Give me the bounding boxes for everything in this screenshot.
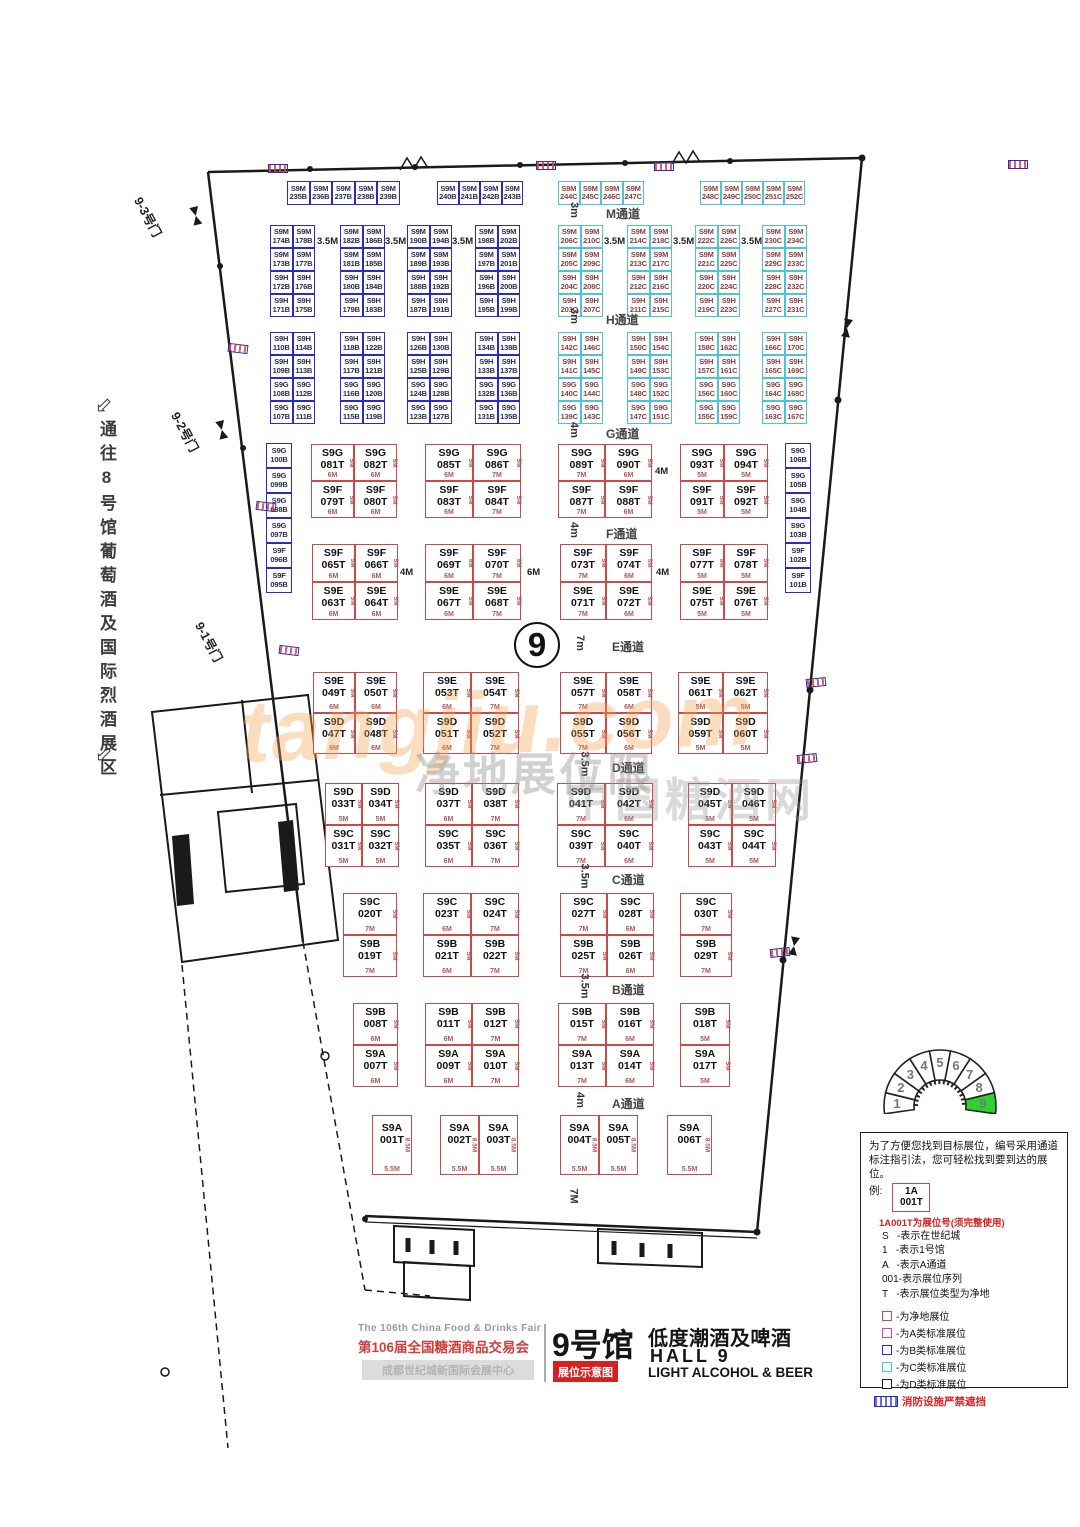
booth-S9D-052T: S9D052T7M5M [471,713,519,754]
booth-S9M-252C: S9M252C [784,181,805,205]
booth-S9A-007T: S9A007T6M5M [353,1045,398,1087]
aisle-width-label: 7m [574,635,586,651]
booth-S9C-027T: S9C027T7M5M [560,893,607,935]
booth-S9F-078T: S9F078T5M5M [724,544,768,582]
booth-S9E-067T: S9E067T6M5M [425,582,473,620]
legend-swatch-label: -为D类标准展位 [896,1376,967,1391]
aisle-name-label: D通道 [612,759,645,776]
booth-S9H-154C: S9H154C [650,332,673,355]
booth-S9M-250C: S9M250C [742,181,763,205]
booth-S9H-195B: S9H195B [475,294,498,317]
booth-S9M-214C: S9M214C [627,225,650,248]
booth-S9H-117B: S9H117B [340,355,363,378]
booth-S9M-197B: S9M197B [475,248,498,271]
hall-position-indicator: 123456789 [876,1034,1004,1114]
booth-S9G-128B: S9G128B [430,378,453,401]
booth-S9G-111B: S9G111B [293,401,316,424]
booth-S9H-223C: S9H223C [718,294,741,317]
booth-S9E-063T: S9E063T6M5M [312,582,355,620]
booth-S9H-175B: S9H175B [293,294,316,317]
booth-S9H-113B: S9H113B [293,355,316,378]
booth-S9H-231C: S9H231C [785,294,808,317]
fire-hydrant-icon [654,162,674,171]
hall-name-en: HALL 9 [650,1346,731,1367]
booth-S9G-093T: S9G093T5M5M [680,444,724,481]
hall-segment-number: 6 [952,1058,959,1073]
booth-S9M-230C: S9M230C [762,225,785,248]
legend-swatch-color [882,1328,892,1338]
booth-S9F-069T: S9F069T6M5M [425,544,473,582]
aisle-name-label: E通道 [612,638,644,655]
booth-S9G-081T: S9G081T6M5M [311,444,354,481]
booth-S9G-124B: S9G124B [407,378,430,401]
booth-S9B-018T: S9B018T5M5M [680,1003,730,1045]
booth-S9G-127B: S9G127B [430,401,453,424]
booth-S9H-170C: S9H170C [785,332,808,355]
booth-S9M-194B: S9M194B [430,225,453,248]
booth-S9H-180B: S9H180B [340,271,363,294]
gap-dimension-label: 4M [655,466,668,477]
booth-S9M-186B: S9M186B [363,225,386,248]
booth-S9H-172B: S9H172B [270,271,293,294]
hall-name-cn: 9号馆 [552,1320,634,1366]
booth-S9M-240B: S9M240B [437,181,459,205]
booth-S9G-082T: S9G082T6M5M [354,444,397,481]
booth-S9H-183B: S9H183B [363,294,386,317]
booth-S9M-226C: S9M226C [718,225,741,248]
booth-S9H-110B: S9H110B [270,332,293,355]
entrance-vestibules [394,1226,702,1300]
legend-swatch-row: -为B类标准展位 [882,1342,1059,1357]
entrance-doors [408,1238,670,1258]
booth-S9E-054T: S9E054T7M5M [471,672,519,713]
booth-S9M-241B: S9M241B [459,181,481,205]
booth-S9M-190B: S9M190B [407,225,430,248]
booth-S9A-017T: S9A017T5M5M [680,1045,730,1087]
booth-S9M-185B: S9M185B [363,248,386,271]
booth-S9G-103B: S9G103B [785,518,811,543]
booth-S9G-119B: S9G119B [363,401,386,424]
fire-equipment-icon [874,1396,898,1407]
booth-S9H-169C: S9H169C [785,355,808,378]
booth-S9H-150C: S9H150C [627,332,650,355]
booth-S9F-095B: S9F095B [266,568,292,593]
booth-S9F-077T: S9F077T5M5M [680,544,724,582]
booth-S9F-065T: S9F065T6M5M [312,544,355,582]
booth-S9H-129B: S9H129B [430,355,453,378]
aisle-width-label: 3.5m [579,751,591,776]
gap-dimension-label: 3.5M [741,236,762,247]
booth-S9H-137B: S9H137B [498,355,521,378]
booth-S9G-167C: S9G167C [785,401,808,424]
legend-swatch-row: -为C类标准展位 [882,1359,1059,1374]
booth-S9M-246C: S9M246C [601,181,623,205]
booth-S9H-146C: S9H146C [581,332,604,355]
booth-S9H-232C: S9H232C [785,271,808,294]
booth-S9E-050T: S9E050T6M5M [355,672,397,713]
booth-S9G-147C: S9G147C [627,401,650,424]
booth-S9B-029T: S9B029T7M5M [680,935,732,977]
booth-S9E-057T: S9E057T7M5M [560,672,606,713]
booth-S9H-179B: S9H179B [340,294,363,317]
booth-S9H-215C: S9H215C [650,294,673,317]
booth-S9G-108B: S9G108B [270,378,293,401]
booth-S9M-247C: S9M247C [623,181,645,205]
legend-example-line1: 1A [893,1186,929,1198]
gap-dimension-label: 3.5M [385,236,406,247]
corridor-note: 通往8号馆葡萄酒及国际烈酒展区 [94,420,119,782]
booth-S9A-005T: S9A005T5.5M8.5M [599,1115,638,1175]
booth-S9C-030T: S9C030T7M5M [680,893,732,935]
booth-S9H-220C: S9H220C [695,271,718,294]
legend-swatch-label: -为B类标准展位 [896,1342,966,1357]
fair-title-cn: 第106届全国糖酒商品交易会 [358,1336,529,1356]
booth-S9M-237B: S9M237B [332,181,355,205]
booth-S9M-202B: S9M202B [498,225,521,248]
booth-S9B-025T: S9B025T7M5M [560,935,607,977]
booth-S9H-145C: S9H145C [581,355,604,378]
hall-segment-number: 7 [966,1067,973,1082]
booth-S9G-164C: S9G164C [762,378,785,401]
booth-S9G-156C: S9G156C [695,378,718,401]
booth-S9M-234C: S9M234C [785,225,808,248]
booth-S9G-099B: S9G099B [266,468,292,493]
booth-S9D-041T: S9D041T7M5M [557,783,605,825]
booth-S9G-104B: S9G104B [785,493,811,518]
booth-S9H-216C: S9H216C [650,271,673,294]
booth-S9H-134B: S9H134B [475,332,498,355]
booth-S9E-049T: S9E049T6M5M [313,672,355,713]
aisle-name-label: F通道 [606,525,637,542]
aisle-name-label: H通道 [606,311,639,328]
title-divider [544,1324,546,1382]
booth-S9C-028T: S9C028T6M5M [607,893,654,935]
booth-S9H-149C: S9H149C [627,355,650,378]
booth-S9E-061T: S9E061T5M5M [678,672,723,713]
booth-S9C-020T: S9C020T7M5M [343,893,397,935]
booth-S9M-222C: S9M222C [695,225,718,248]
booth-S9C-039T: S9C039T7M5M [557,825,605,867]
booth-S9D-038T: S9D038T7M5M [472,783,519,825]
booth-S9E-071T: S9E071T7M5M [560,582,606,620]
booth-S9D-048T: S9D048T6M5M [355,713,397,754]
booth-S9M-225C: S9M225C [718,248,741,271]
legend-code-note: 1A001T为展位号(须完整使用) [879,1215,1059,1229]
booth-S9D-059T: S9D059T5M5M [678,713,723,754]
booth-S9F-087T: S9F087T7M5M [558,481,605,518]
fire-hydrant-icon [536,161,556,170]
fire-hydrant-icon [268,164,288,173]
legend-example-booth: 1A 001T [892,1183,930,1212]
booth-S9M-205C: S9M205C [558,248,581,271]
booth-S9G-163C: S9G163C [762,401,785,424]
booth-S9H-125B: S9H125B [407,355,430,378]
booth-S9E-072T: S9E072T6M5M [606,582,652,620]
booth-S9D-045T: S9D045T5M5M [688,783,732,825]
aisle-width-label: 4m [568,422,580,438]
booth-S9F-066T: S9F066T6M5M [355,544,398,582]
booth-S9A-002T: S9A002T5.5M8.5M [440,1115,479,1175]
booth-S9F-092T: S9F092T5M5M [724,481,768,518]
booth-S9M-201B: S9M201B [498,248,521,271]
booth-S9M-174B: S9M174B [270,225,293,248]
booth-S9H-141C: S9H141C [558,355,581,378]
booth-S9D-033T: S9D033T5M5M [325,783,362,825]
booth-S9G-085T: S9G085T6M5M [425,444,473,481]
booth-S9G-107B: S9G107B [270,401,293,424]
stairwell-bars [172,820,299,906]
booth-S9E-075T: S9E075T5M5M [680,582,724,620]
booth-S9G-094T: S9G094T5M5M [724,444,768,481]
booth-S9H-176B: S9H176B [293,271,316,294]
booth-S9H-121B: S9H121B [363,355,386,378]
legend-swatch-color [882,1345,892,1355]
booth-S9E-064T: S9E064T6M5M [355,582,398,620]
legend-swatch-color [882,1362,892,1372]
booth-S9G-116B: S9G116B [340,378,363,401]
booth-S9F-083T: S9F083T6M5M [425,481,473,518]
booth-S9M-243B: S9M243B [502,181,524,205]
booth-S9M-182B: S9M182B [340,225,363,248]
booth-S9B-021T: S9B021T6M5M [423,935,471,977]
booth-S9G-143C: S9G143C [581,401,604,424]
aisle-width-label: 4m [568,522,580,538]
booth-S9H-200B: S9H200B [498,271,521,294]
booth-S9M-242B: S9M242B [480,181,502,205]
aisle-name-label: B通道 [612,981,645,998]
booth-S9G-140C: S9G140C [558,378,581,401]
aisle-width-label: 3m [568,202,580,218]
booth-S9G-131B: S9G131B [475,401,498,424]
booth-S9H-219C: S9H219C [695,294,718,317]
hall-segment-number: 4 [920,1058,928,1073]
booth-S9G-100B: S9G100B [266,443,292,468]
legend-swatch-label: -为净地展位 [896,1308,949,1323]
booth-S9G-097B: S9G097B [266,518,292,543]
gap-dimension-label: 3.5M [673,236,694,247]
booth-S9M-213C: S9M213C [627,248,650,271]
booth-S9M-221C: S9M221C [695,248,718,271]
booth-S9G-089T: S9G089T7M5M [558,444,605,481]
booth-S9A-004T: S9A004T5.5M8.5M [560,1115,599,1175]
booth-S9F-070T: S9F070T7M5M [473,544,521,582]
booth-S9A-001T: S9A001T5.5M8.5M [372,1115,412,1175]
legend-definition: A -表示A通道 [882,1259,1059,1274]
booth-S9M-206C: S9M206C [558,225,581,248]
booth-S9M-233C: S9M233C [785,248,808,271]
legend-box: 为了方便您找到目标展位，编号采用通道标注指引法，您可轻松找到要到达的展位。 例:… [860,1132,1068,1388]
legend-swatches: -为净地展位-为A类标准展位-为B类标准展位-为C类标准展位-为D类标准展位 [869,1308,1059,1391]
booth-S9G-168C: S9G168C [785,378,808,401]
booth-S9B-011T: S9B011T6M5M [425,1003,472,1045]
booth-S9D-051T: S9D051T6M5M [423,713,471,754]
booth-S9B-022T: S9B022T7M5M [471,935,519,977]
legend-example-line2: 001T [893,1197,929,1209]
aisle-width-label: 7M [568,1188,580,1203]
aisle-name-label: G通道 [606,425,639,442]
booth-S9H-118B: S9H118B [340,332,363,355]
booth-S9H-162C: S9H162C [718,332,741,355]
booth-S9H-171B: S9H171B [270,294,293,317]
aisle-name-label: C通道 [612,871,645,888]
booth-S9H-224C: S9H224C [718,271,741,294]
booth-S9B-015T: S9B015T7M5M [558,1003,606,1045]
booth-S9C-032T: S9C032T5M5M [362,825,399,867]
booth-S9C-031T: S9C031T5M5M [325,825,362,867]
booth-S9M-178B: S9M178B [293,225,316,248]
booth-S9F-084T: S9F084T7M5M [473,481,521,518]
hall-number-circle: 9 [514,622,560,668]
booth-S9C-043T: S9C043T5M5M [688,825,732,867]
booth-S9F-101B: S9F101B [785,568,811,593]
booth-S9H-153C: S9H153C [650,355,673,378]
booth-S9F-079T: S9F079T6M5M [311,481,354,518]
booth-S9B-019T: S9B019T7M5M [343,935,397,977]
booth-S9H-130B: S9H130B [430,332,453,355]
booth-S9B-026T: S9B026T6M5M [607,935,654,977]
booth-S9C-036T: S9C036T7M5M [472,825,519,867]
booth-S9G-159C: S9G159C [718,401,741,424]
booth-S9M-238B: S9M238B [355,181,378,205]
booth-S9G-090T: S9G090T6M5M [605,444,652,481]
booth-S9E-076T: S9E076T5M5M [724,582,768,620]
hall-topic-en: LIGHT ALCOHOL & BEER [648,1365,813,1380]
booth-S9G-123B: S9G123B [407,401,430,424]
aisle-width-label: 3m [568,308,580,324]
booth-S9F-080T: S9F080T6M5M [354,481,397,518]
booth-S9H-187B: S9H187B [407,294,430,317]
booth-S9E-053T: S9E053T6M5M [423,672,471,713]
venue-name: 成都世纪城新国际会展中心 [362,1360,534,1380]
legend-definitions: S -表示在世纪城1 -表示1号馆A -表示A通道001-表示展位序列T -表示… [869,1230,1059,1303]
booth-S9M-248C: S9M248C [700,181,721,205]
gap-dimension-label: 4M [656,567,669,578]
legend-swatch-label: -为A类标准展位 [896,1325,966,1340]
booth-S9H-227C: S9H227C [762,294,785,317]
booth-S9G-160C: S9G160C [718,378,741,401]
booth-S9A-003T: S9A003T5.5M8.5M [479,1115,518,1175]
booth-S9H-228C: S9H228C [762,271,785,294]
hall-segment-number: 8 [975,1080,982,1095]
booth-S9A-006T: S9A006T5.5M8.5M [667,1115,712,1175]
aisle-name-label: A通道 [612,1095,645,1112]
booth-S9H-142C: S9H142C [558,332,581,355]
booth-S9H-114B: S9H114B [293,332,316,355]
booth-S9H-208C: S9H208C [581,271,604,294]
aisle-width-label: 3.5m [579,863,591,888]
plan-badge: 展位示意图 [553,1361,618,1382]
booth-S9H-126B: S9H126B [407,332,430,355]
hall-segment-number: 1 [893,1096,900,1111]
booth-S9F-096B: S9F096B [266,543,292,568]
legend-swatch-color [882,1311,892,1321]
booth-S9E-062T: S9E062T5M5M [723,672,768,713]
booth-S9G-152C: S9G152C [650,378,673,401]
booth-S9D-034T: S9D034T5M5M [362,783,399,825]
booth-S9C-044T: S9C044T5M5M [732,825,776,867]
booth-S9M-229C: S9M229C [762,248,785,271]
booth-S9H-212C: S9H212C [627,271,650,294]
legend-definition: 001-表示展位序列 [882,1273,1059,1288]
aisle-name-label: M通道 [606,205,640,222]
booth-S9M-217C: S9M217C [650,248,673,271]
legend-swatch-row: -为净地展位 [882,1308,1059,1323]
booth-S9H-138B: S9H138B [498,332,521,355]
hall-segment-number: 2 [897,1080,904,1095]
booth-S9G-120B: S9G120B [363,378,386,401]
booth-S9H-161C: S9H161C [718,355,741,378]
annex-rooms [152,695,338,962]
hall9-floorplan: S9M235BS9M236BS9M237BS9M238BS9M239BS9M24… [0,0,1080,1527]
booth-S9G-155C: S9G155C [695,401,718,424]
booth-S9C-035T: S9C035T6M5M [425,825,472,867]
booth-S9A-009T: S9A009T6M5M [425,1045,472,1087]
booth-S9G-151C: S9G151C [650,401,673,424]
booth-S9G-135B: S9G135B [498,401,521,424]
booth-S9G-115B: S9G115B [340,401,363,424]
booth-S9F-088T: S9F088T6M5M [605,481,652,518]
booth-S9H-165C: S9H165C [762,355,785,378]
booth-S9M-209C: S9M209C [581,248,604,271]
booth-S9E-068T: S9E068T7M5M [473,582,521,620]
gap-dimension-label: 3.5M [317,236,338,247]
booth-S9D-046T: S9D046T5M5M [732,783,776,825]
booth-S9B-008T: S9B008T6M5M [353,1003,398,1045]
legend-definition: T -表示展位类型为净地 [882,1288,1059,1303]
booth-S9M-198B: S9M198B [475,225,498,248]
gap-dimension-label: 3.5M [604,236,625,247]
booth-S9M-181B: S9M181B [340,248,363,271]
booth-S9A-013T: S9A013T7M5M [558,1045,606,1087]
gap-dimension-label: 6M [527,567,540,578]
booth-S9G-132B: S9G132B [475,378,498,401]
legend-swatch-label: -为C类标准展位 [896,1359,967,1374]
booth-S9H-166C: S9H166C [762,332,785,355]
booth-S9D-060T: S9D060T5M5M [723,713,768,754]
booth-S9D-055T: S9D055T7M5M [560,713,606,754]
booth-S9M-189B: S9M189B [407,248,430,271]
aisle-width-label: 3.5m [579,973,591,998]
booth-S9C-040T: S9C040T6M5M [605,825,653,867]
booth-S9D-047T: S9D047T6M5M [313,713,355,754]
booth-S9C-023T: S9C023T6M5M [423,893,471,935]
hall-segment-number: 3 [907,1067,914,1082]
legend-intro: 为了方便您找到目标展位，编号采用通道标注指引法，您可轻松找到要到达的展位。 [869,1140,1059,1182]
booth-S9H-199B: S9H199B [498,294,521,317]
booth-S9G-086T: S9G086T7M5M [473,444,521,481]
booth-S9H-207C: S9H207C [581,294,604,317]
booth-S9H-122B: S9H122B [363,332,386,355]
gap-dimension-label: 3.5M [452,236,473,247]
booth-S9H-204C: S9H204C [558,271,581,294]
booth-S9G-112B: S9G112B [293,378,316,401]
booth-S9G-144C: S9G144C [581,378,604,401]
booth-S9M-210C: S9M210C [581,225,604,248]
booth-S9G-139C: S9G139C [558,401,581,424]
booth-S9D-037T: S9D037T6M5M [425,783,472,825]
booth-S9F-073T: S9F073T7M5M [560,544,606,582]
booth-S9A-010T: S9A010T7M5M [472,1045,519,1087]
gap-dimension-label: 4M [400,567,413,578]
legend-swatch-color [882,1379,892,1389]
booth-S9G-148C: S9G148C [627,378,650,401]
booth-S9H-188B: S9H188B [407,271,430,294]
booth-S9D-056T: S9D056T6M5M [606,713,652,754]
booth-S9D-042T: S9D042T6M5M [605,783,653,825]
hall-segment-number: 9 [979,1096,986,1111]
booth-S9H-184B: S9H184B [363,271,386,294]
booth-S9M-177B: S9M177B [293,248,316,271]
